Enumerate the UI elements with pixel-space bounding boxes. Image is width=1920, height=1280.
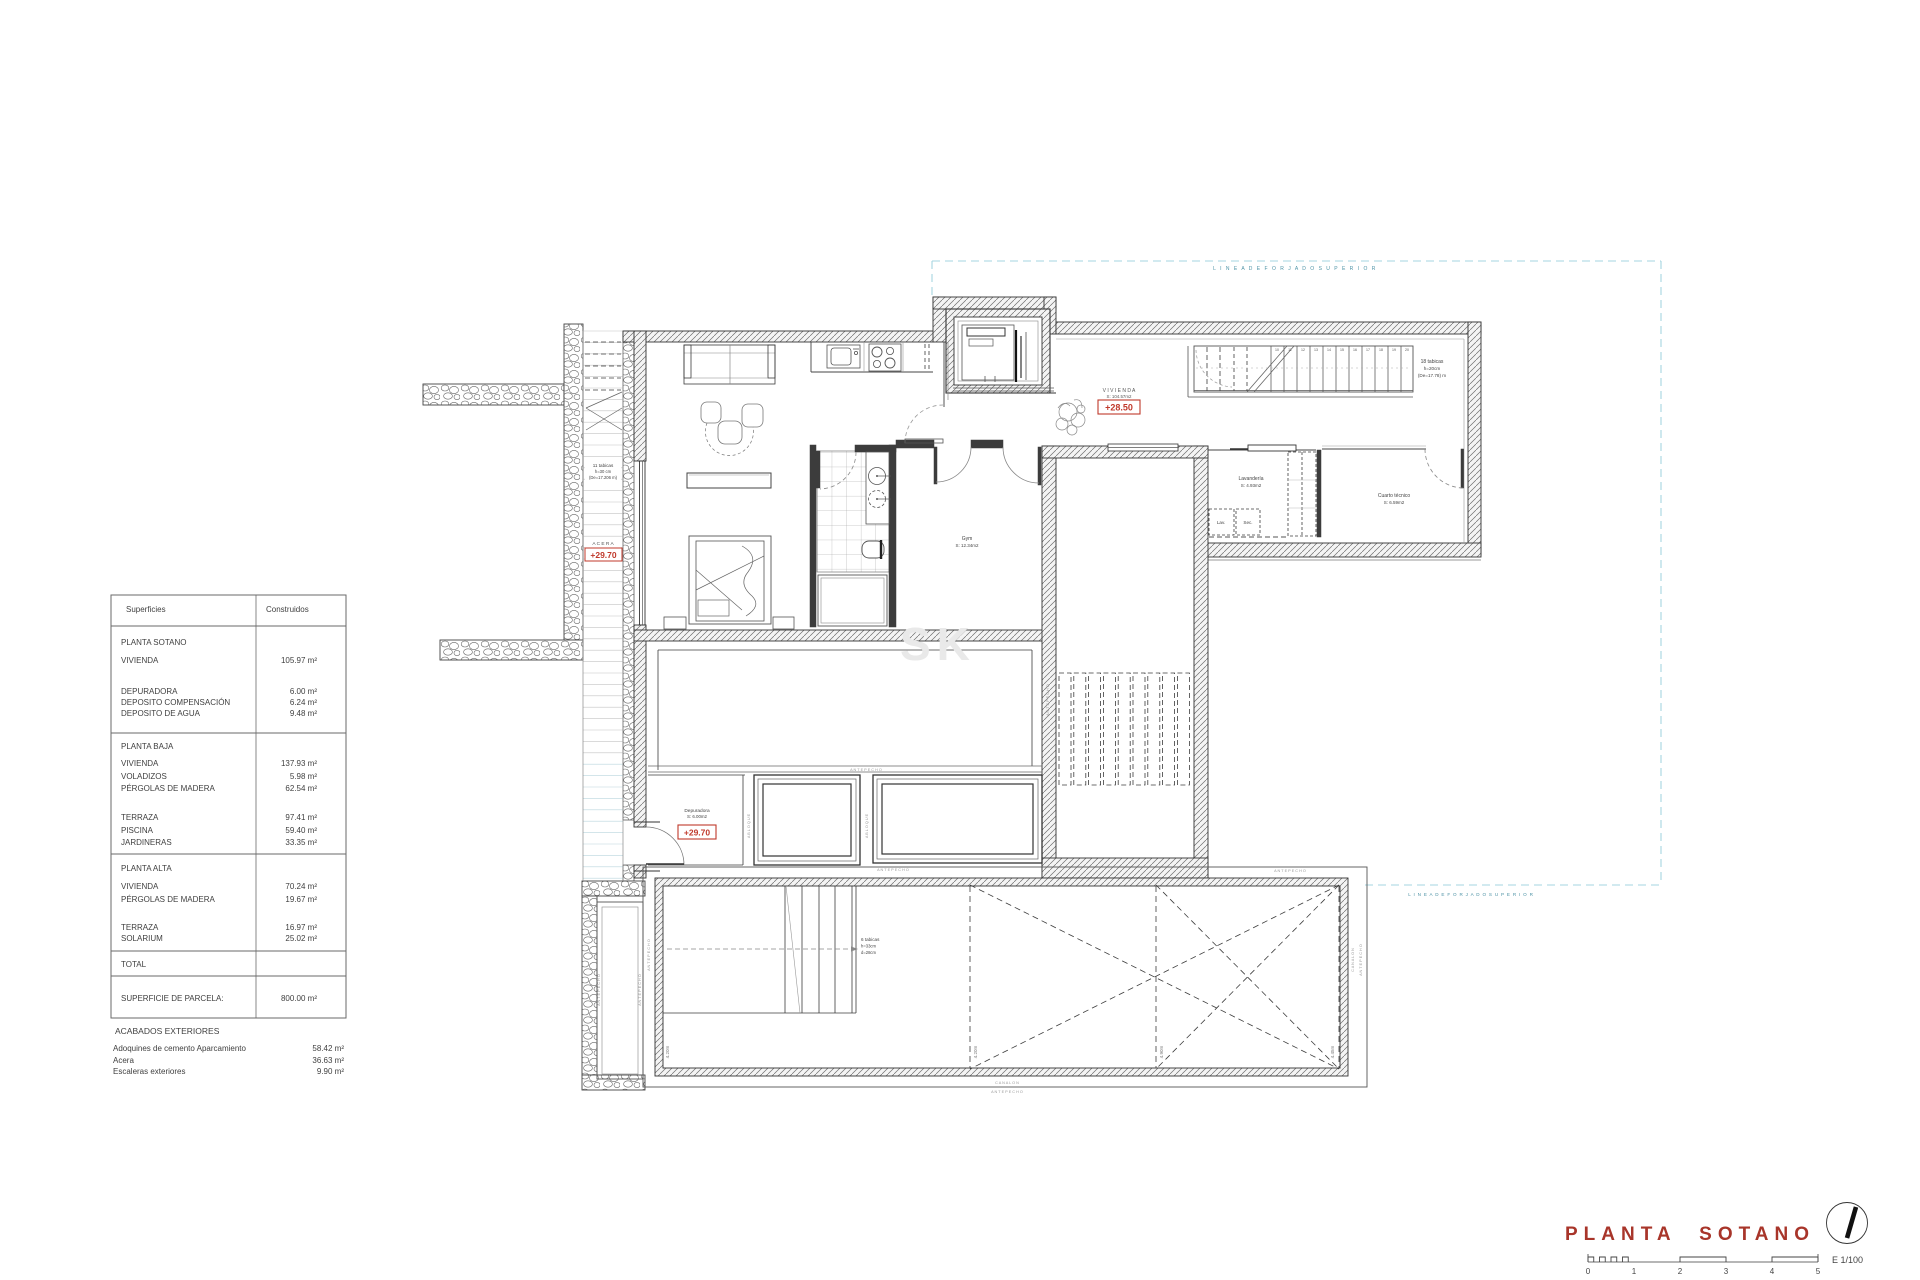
svg-text:4.20m: 4.20m [665, 1045, 670, 1058]
svg-text:+29.70: +29.70 [684, 828, 711, 838]
svg-text:L I N E A D E F O R J A D: L I N E A D E F O R J A D O S U P E R I … [1408, 892, 1534, 897]
svg-text:13: 13 [1314, 348, 1318, 352]
svg-text:+29.70: +29.70 [590, 550, 617, 560]
svg-text:4.45m: 4.45m [1330, 1045, 1335, 1058]
svg-text:PLANTA SOTANO: PLANTA SOTANO [121, 638, 187, 647]
svg-text:h=30 cm: h=30 cm [595, 469, 612, 474]
svg-text:5.98 m²: 5.98 m² [290, 772, 317, 781]
svg-text:S: 6.00m2: S: 6.00m2 [687, 814, 708, 819]
svg-text:A N T E P E C H O: A N T E P E C H O [638, 974, 642, 1006]
svg-text:S: 104.57m2: S: 104.57m2 [1107, 394, 1132, 399]
svg-text:18 tabicas: 18 tabicas [1421, 359, 1444, 365]
svg-text:25.02 m²: 25.02 m² [285, 934, 317, 943]
svg-text:h=20cm: h=20cm [1424, 366, 1441, 371]
svg-text:62.54 m²: 62.54 m² [285, 784, 317, 793]
svg-text:19.67 m²: 19.67 m² [285, 895, 317, 904]
svg-text:Superficies: Superficies [126, 605, 166, 614]
svg-text:E 1/100: E 1/100 [1832, 1255, 1863, 1265]
svg-text:SK: SK [900, 618, 976, 670]
svg-text:A C E R A: A C E R A [592, 541, 614, 547]
svg-text:6.24 m²: 6.24 m² [290, 698, 317, 707]
svg-text:Lav.: Lav. [1217, 520, 1225, 525]
svg-text:58.42 m²: 58.42 m² [312, 1044, 344, 1053]
svg-text:TERRAZA: TERRAZA [121, 813, 159, 822]
svg-text:C A N A L O N: C A N A L O N [995, 1081, 1019, 1085]
svg-text:A N T E P E C H O: A N T E P E C H O [991, 1090, 1023, 1094]
svg-text:15: 15 [1340, 348, 1344, 352]
svg-text:DEPURADORA: DEPURADORA [121, 687, 178, 696]
svg-text:36.63 m²: 36.63 m² [312, 1056, 344, 1065]
svg-text:A B L O Q U E: A B L O Q U E [747, 813, 751, 838]
svg-text:1: 1 [1632, 1267, 1637, 1276]
svg-text:6 tabicas: 6 tabicas [861, 937, 880, 942]
svg-text:6.00 m²: 6.00 m² [290, 687, 317, 696]
svg-text:Lavandería: Lavandería [1238, 476, 1263, 482]
svg-text:PÉRGOLAS DE MADERA: PÉRGOLAS DE MADERA [121, 784, 215, 793]
svg-text:9.90 m²: 9.90 m² [317, 1067, 344, 1076]
svg-text:A B L O Q U E: A B L O Q U E [865, 813, 869, 838]
svg-text:A N T E P E C H O: A N T E P E C H O [597, 974, 601, 1006]
svg-text:0: 0 [1586, 1267, 1591, 1276]
svg-text:11 tabicas: 11 tabicas [593, 463, 614, 468]
svg-text:h=33cm: h=33cm [861, 944, 877, 949]
svg-text:105.97 m²: 105.97 m² [281, 656, 317, 665]
svg-text:PLANTA BAJA: PLANTA BAJA [121, 742, 174, 751]
svg-text:A N T E P E C H O: A N T E P E C H O [1274, 869, 1306, 873]
svg-text:S: 6.59m2: S: 6.59m2 [1384, 500, 1405, 505]
svg-text:SUPERFICIE DE PARCELA:: SUPERFICIE DE PARCELA: [121, 994, 224, 1003]
svg-text:16.97 m²: 16.97 m² [285, 923, 317, 932]
svg-text:C A N A L O N: C A N A L O N [1351, 948, 1355, 972]
svg-text:59.40 m²: 59.40 m² [285, 826, 317, 835]
svg-text:Sec.: Sec. [1243, 520, 1252, 525]
svg-text:PISCINA: PISCINA [121, 826, 154, 835]
svg-text:4.20m: 4.20m [973, 1045, 978, 1058]
svg-text:11: 11 [1288, 348, 1292, 352]
svg-text:70.24 m²: 70.24 m² [285, 882, 317, 891]
svg-text:Cuarto técnico: Cuarto técnico [1378, 493, 1410, 499]
svg-text:16: 16 [1353, 348, 1357, 352]
svg-text:VIVIENDA: VIVIENDA [121, 759, 159, 768]
svg-text:17: 17 [1366, 348, 1370, 352]
svg-text:Escaleras exteriores: Escaleras exteriores [113, 1067, 185, 1076]
svg-text:Adoquines de cemento Aparcamie: Adoquines de cemento Aparcamiento [113, 1044, 247, 1053]
svg-text:ACABADOS EXTERIORES: ACABADOS EXTERIORES [115, 1026, 220, 1036]
svg-text:800.00 m²: 800.00 m² [281, 994, 317, 1003]
svg-text:PLANTA ALTA: PLANTA ALTA [121, 864, 172, 873]
svg-text:137.93 m²: 137.93 m² [281, 759, 317, 768]
svg-text:5: 5 [1816, 1267, 1821, 1276]
svg-text:VIVIENDA: VIVIENDA [121, 882, 159, 891]
svg-text:SOLARIUM: SOLARIUM [121, 934, 163, 943]
svg-text:(De=17.78) m: (De=17.78) m [1418, 373, 1446, 378]
svg-text:d=28cm: d=28cm [861, 950, 877, 955]
svg-text:20: 20 [1405, 348, 1409, 352]
svg-text:10: 10 [1275, 348, 1279, 352]
svg-text:DEPOSITO DE AGUA: DEPOSITO DE AGUA [121, 709, 201, 718]
svg-text:S: 12.34m2: S: 12.34m2 [955, 543, 979, 548]
svg-text:(De=17.206 m): (De=17.206 m) [589, 475, 618, 480]
svg-text:A N T E P E C H O: A N T E P E C H O [1046, 684, 1050, 716]
svg-text:19: 19 [1392, 348, 1396, 352]
svg-text:PÉRGOLAS DE MADERA: PÉRGOLAS DE MADERA [121, 895, 215, 904]
svg-text:14: 14 [1327, 348, 1331, 352]
svg-text:A N T E P E C H O: A N T E P E C H O [647, 939, 651, 971]
svg-text:18: 18 [1379, 348, 1383, 352]
svg-text:L I N E A D E F O R J A D: L I N E A D E F O R J A D O S U P E R I … [1213, 266, 1377, 272]
svg-text:TOTAL: TOTAL [121, 960, 147, 969]
svg-text:4.90m: 4.90m [1159, 1045, 1164, 1058]
svg-text:9.48 m²: 9.48 m² [290, 709, 317, 718]
svg-text:A N T E P E C H O: A N T E P E C H O [877, 868, 909, 872]
svg-text:VIVIENDA: VIVIENDA [121, 656, 159, 665]
svg-text:4: 4 [1770, 1267, 1775, 1276]
svg-text:3: 3 [1724, 1267, 1729, 1276]
svg-text:Gym: Gym [962, 536, 973, 542]
svg-text:+28.50: +28.50 [1105, 403, 1133, 413]
svg-text:TERRAZA: TERRAZA [121, 923, 159, 932]
svg-text:Construidos: Construidos [266, 605, 309, 614]
svg-text:S: 4.93m2: S: 4.93m2 [1241, 483, 1262, 488]
svg-text:JARDINERAS: JARDINERAS [121, 838, 172, 847]
svg-text:97.41 m²: 97.41 m² [285, 813, 317, 822]
svg-text:VOLADIZOS: VOLADIZOS [121, 772, 167, 781]
svg-text:Acera: Acera [113, 1056, 134, 1065]
svg-text:33.35 m²: 33.35 m² [285, 838, 317, 847]
svg-text:A N T E P E C H O: A N T E P E C H O [1359, 944, 1363, 976]
svg-text:A N T E P E C H O: A N T E P E C H O [850, 768, 882, 772]
svg-text:2: 2 [1678, 1267, 1683, 1276]
svg-text:DEPOSITO COMPENSACIÓN: DEPOSITO COMPENSACIÓN [121, 698, 230, 707]
svg-text:PLANTA SOTANO: PLANTA SOTANO [1565, 1224, 1815, 1245]
svg-text:12: 12 [1301, 348, 1305, 352]
